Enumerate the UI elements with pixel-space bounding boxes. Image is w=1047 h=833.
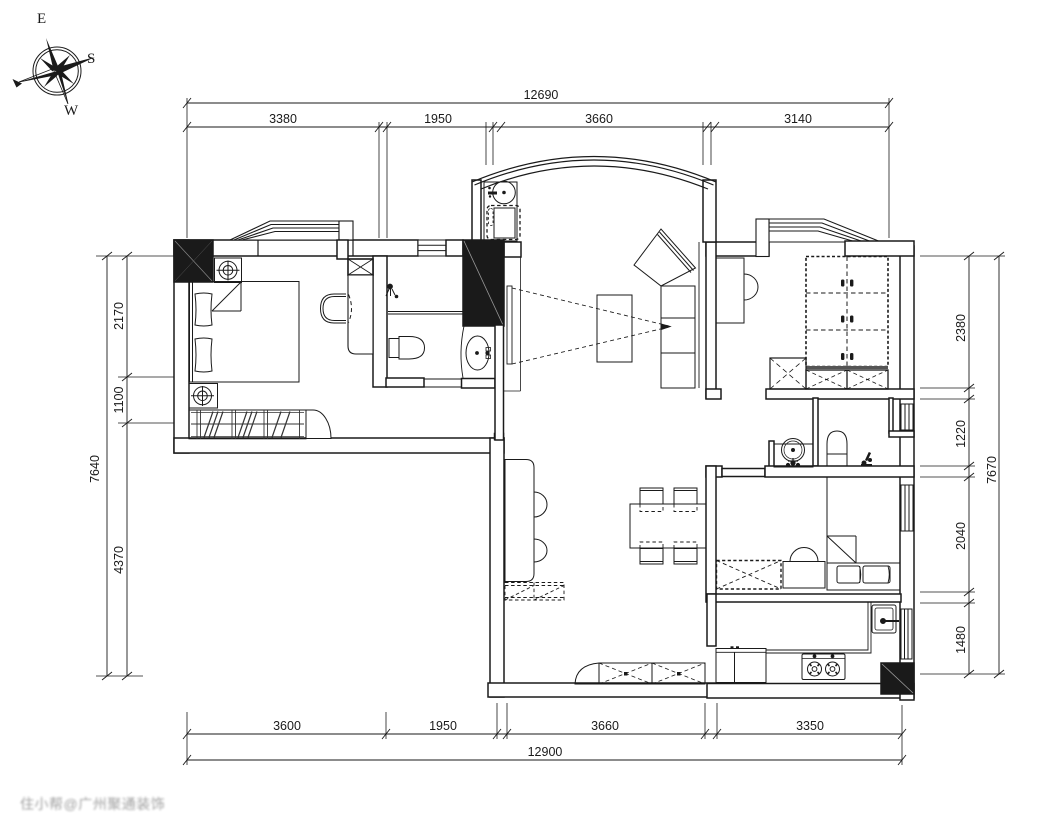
svg-text:3600: 3600	[273, 719, 301, 733]
svg-text:住小帮@广州聚通装饰: 住小帮@广州聚通装饰	[20, 796, 165, 812]
svg-text:2040: 2040	[954, 522, 968, 550]
svg-text:1950: 1950	[424, 112, 452, 126]
svg-text:3660: 3660	[591, 719, 619, 733]
svg-text:3350: 3350	[796, 719, 824, 733]
svg-text:3140: 3140	[784, 112, 812, 126]
svg-text:1480: 1480	[954, 626, 968, 654]
svg-text:1220: 1220	[954, 420, 968, 448]
svg-text:1100: 1100	[112, 387, 126, 414]
svg-text:W: W	[64, 103, 79, 119]
svg-text:3380: 3380	[269, 112, 297, 126]
svg-text:7640: 7640	[88, 455, 102, 483]
svg-text:12690: 12690	[524, 88, 559, 102]
svg-text:12900: 12900	[528, 745, 563, 759]
svg-text:2380: 2380	[954, 314, 968, 342]
svg-text:S: S	[87, 51, 95, 67]
svg-text:E: E	[37, 11, 46, 27]
svg-text:1950: 1950	[429, 719, 457, 733]
svg-text:3660: 3660	[585, 112, 613, 126]
svg-text:2170: 2170	[112, 302, 126, 330]
svg-text:4370: 4370	[112, 546, 126, 574]
svg-text:7670: 7670	[985, 456, 999, 484]
